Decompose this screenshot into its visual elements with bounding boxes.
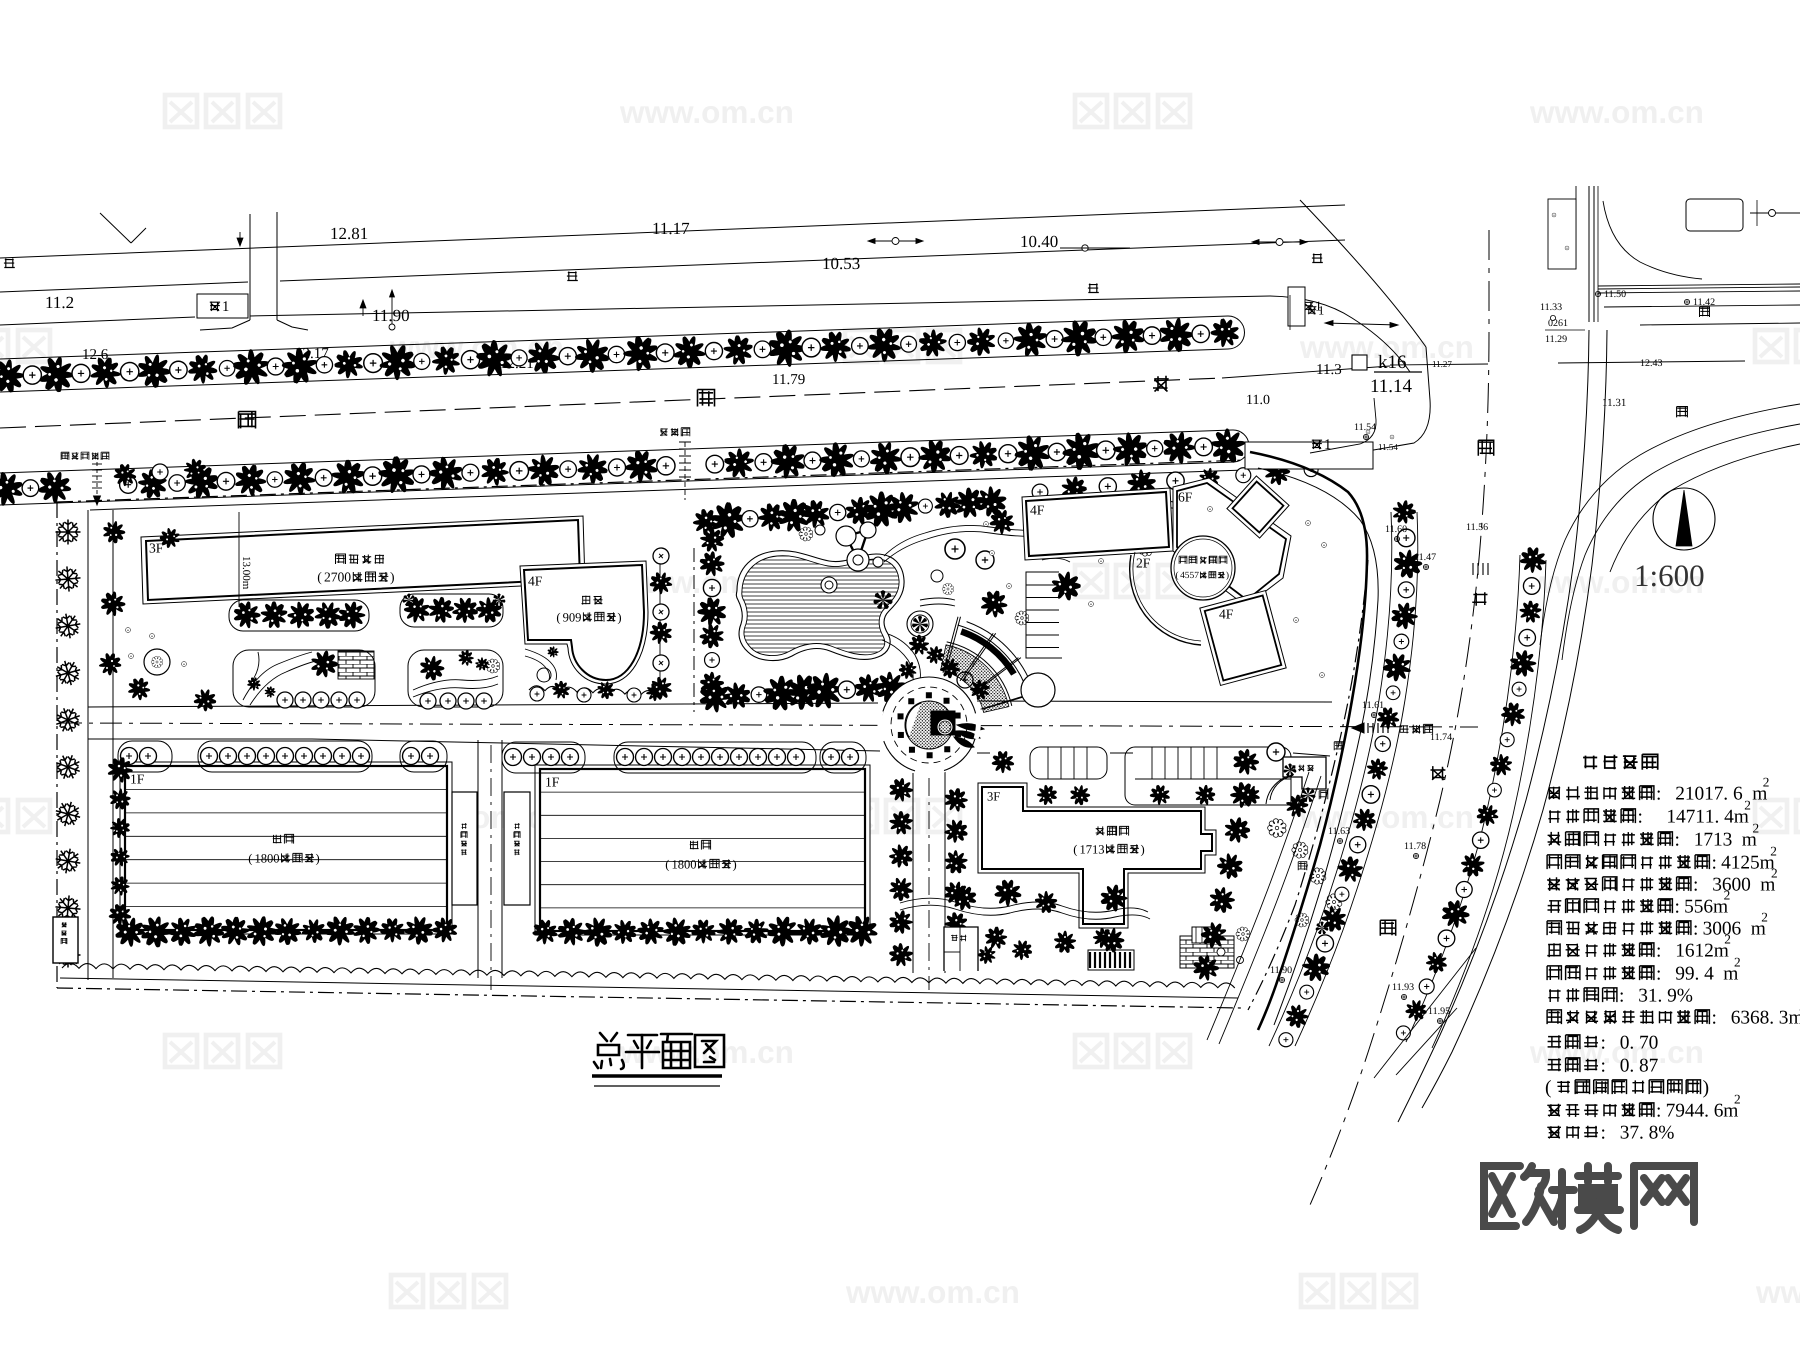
svg-text::: :	[1675, 897, 1680, 918]
svg-text:1: 1	[545, 775, 552, 790]
svg-text:F: F	[993, 789, 1000, 803]
svg-text::: :	[1693, 875, 1698, 896]
svg-text:1: 1	[1666, 807, 1676, 828]
svg-text:2: 2	[1753, 821, 1760, 836]
svg-text:11.93: 11.93	[1392, 982, 1414, 993]
svg-text:4: 4	[1721, 853, 1731, 874]
svg-text:11.0: 11.0	[1246, 393, 1270, 408]
svg-text::: :	[1712, 1008, 1717, 1029]
svg-text:11.63: 11.63	[1328, 826, 1350, 837]
svg-text:10.53: 10.53	[822, 254, 860, 273]
svg-text:3: 3	[1098, 842, 1104, 856]
svg-text:6: 6	[1703, 897, 1713, 918]
svg-text:F: F	[1185, 490, 1193, 505]
svg-text::: :	[1656, 784, 1661, 805]
svg-text:11.27: 11.27	[1432, 359, 1452, 369]
svg-text:11.42: 11.42	[1693, 297, 1715, 308]
svg-text:11.56: 11.56	[1466, 522, 1488, 533]
svg-text:11.74: 11.74	[1430, 732, 1452, 743]
svg-text:.: .	[1704, 1101, 1709, 1122]
svg-text:1: 1	[1685, 784, 1695, 805]
svg-text:3: 3	[1712, 875, 1722, 896]
svg-text:(: (	[556, 610, 560, 624]
svg-text:11.79: 11.79	[772, 372, 805, 388]
svg-text:%: %	[1677, 986, 1693, 1007]
svg-text:4: 4	[1724, 807, 1734, 828]
svg-text:1: 1	[222, 299, 229, 315]
svg-text:F: F	[1037, 503, 1045, 518]
svg-text:3: 3	[1723, 830, 1733, 851]
svg-text:1: 1	[1648, 986, 1658, 1007]
svg-text:2: 2	[1734, 955, 1741, 970]
svg-text:www.om.cn: www.om.cn	[1529, 94, 1704, 130]
svg-text:2: 2	[1770, 844, 1777, 859]
svg-text::: :	[1601, 1056, 1606, 1077]
svg-text::: :	[1601, 1123, 1606, 1144]
svg-text:8: 8	[1760, 1008, 1770, 1029]
svg-text:12.43: 12.43	[1640, 358, 1663, 369]
svg-text:.: .	[1629, 1033, 1634, 1054]
svg-text:11.54: 11.54	[1354, 422, 1376, 433]
svg-text:0: 0	[344, 570, 351, 585]
svg-text:6: 6	[1714, 1101, 1724, 1122]
svg-text:7: 7	[1639, 1033, 1649, 1054]
svg-text:(: (	[317, 570, 322, 585]
svg-text:2: 2	[1763, 775, 1770, 790]
svg-text:11.47: 11.47	[1414, 552, 1436, 563]
svg-text:(: (	[1545, 1078, 1551, 1099]
svg-text:2: 2	[1724, 888, 1731, 903]
svg-text:11.14: 11.14	[1370, 376, 1413, 397]
svg-text:2: 2	[1771, 866, 1778, 881]
svg-text::: :	[1712, 853, 1717, 874]
svg-text:10.40: 10.40	[1020, 232, 1058, 251]
svg-text::: :	[1675, 830, 1680, 851]
svg-text:8: 8	[1639, 1056, 1649, 1077]
svg-text:7: 7	[1194, 571, 1199, 581]
svg-text:.: .	[1715, 807, 1720, 828]
svg-text::: :	[1656, 1101, 1661, 1122]
svg-text:): )	[390, 570, 395, 585]
svg-text:1: 1	[1694, 830, 1704, 851]
svg-text:www.om.cn: www.om.cn	[1755, 1274, 1800, 1310]
svg-text:12.81: 12.81	[330, 224, 368, 243]
svg-text:.: .	[1629, 1056, 1634, 1077]
svg-text:.: .	[1723, 784, 1728, 805]
svg-text:3: 3	[1620, 1123, 1630, 1144]
svg-text:(: (	[665, 857, 669, 871]
svg-text:5: 5	[1684, 897, 1694, 918]
svg-text::: :	[1601, 1033, 1606, 1054]
svg-text:F: F	[1226, 607, 1234, 622]
svg-text:4: 4	[1685, 1101, 1695, 1122]
svg-text:): )	[617, 610, 621, 624]
svg-text:3: 3	[1740, 1008, 1750, 1029]
svg-text:9: 9	[1667, 986, 1677, 1007]
svg-text:7: 7	[1666, 1101, 1676, 1122]
svg-text:0: 0	[690, 857, 696, 871]
svg-text::: :	[1656, 941, 1661, 962]
svg-text:9: 9	[1675, 1101, 1685, 1122]
svg-text:7: 7	[1649, 1056, 1659, 1077]
svg-text:): )	[733, 857, 737, 871]
svg-text:2: 2	[1704, 941, 1714, 962]
svg-text:2: 2	[1724, 932, 1731, 947]
svg-text:1:600: 1:600	[1634, 558, 1705, 593]
svg-text:11.60: 11.60	[1385, 524, 1407, 535]
svg-text:11.29: 11.29	[1545, 334, 1567, 345]
svg-text:1: 1	[1318, 303, 1324, 317]
svg-text:6: 6	[1732, 919, 1742, 940]
svg-text:9: 9	[1685, 964, 1695, 985]
svg-text:7: 7	[1703, 830, 1713, 851]
svg-text:7: 7	[1629, 1123, 1639, 1144]
svg-text:5: 5	[1694, 897, 1704, 918]
svg-text:6: 6	[1733, 784, 1743, 805]
svg-text:9: 9	[575, 610, 581, 624]
svg-text:1: 1	[1731, 853, 1741, 874]
svg-text::: :	[1638, 807, 1643, 828]
svg-text:(: (	[1176, 571, 1179, 581]
svg-text:11.17: 11.17	[652, 219, 690, 238]
svg-text:): )	[316, 851, 320, 865]
svg-text:7: 7	[1686, 807, 1696, 828]
svg-text:11.90: 11.90	[1270, 965, 1292, 976]
svg-text:(: (	[248, 851, 252, 865]
svg-text:2: 2	[1734, 1092, 1741, 1107]
svg-text:): )	[1703, 1078, 1709, 1099]
svg-text:1: 1	[1695, 807, 1705, 828]
svg-text:5: 5	[1750, 853, 1760, 874]
svg-text:F: F	[1143, 556, 1151, 571]
svg-text:.: .	[1639, 1123, 1644, 1144]
svg-text:F: F	[552, 775, 560, 790]
svg-text:0: 0	[1620, 1056, 1630, 1077]
svg-text::: :	[1619, 986, 1624, 1007]
svg-text:1: 1	[1705, 807, 1715, 828]
svg-text:0: 0	[1712, 919, 1722, 940]
svg-text:2: 2	[1761, 910, 1768, 925]
svg-text::: :	[1693, 919, 1698, 940]
svg-text::: :	[1656, 964, 1661, 985]
svg-text:13.00m: 13.00m	[240, 556, 252, 590]
svg-text:3: 3	[1638, 986, 1648, 1007]
svg-text:11.95: 11.95	[1428, 1006, 1450, 1017]
svg-text:k16: k16	[1378, 352, 1407, 373]
svg-text:11.31: 11.31	[1602, 397, 1626, 409]
svg-text:0: 0	[1741, 875, 1751, 896]
svg-text:F: F	[535, 574, 543, 589]
svg-text:1: 1	[1713, 830, 1723, 851]
svg-text:11.61: 11.61	[1362, 700, 1384, 711]
svg-text:6: 6	[1685, 941, 1695, 962]
svg-text:11.90: 11.90	[372, 306, 410, 325]
svg-text:1: 1	[1704, 784, 1714, 805]
svg-text:0: 0	[1732, 875, 1742, 896]
svg-text:4: 4	[1676, 807, 1686, 828]
svg-text:1: 1	[1695, 941, 1705, 962]
svg-text:11.2: 11.2	[45, 293, 74, 312]
svg-text:3: 3	[1703, 919, 1713, 940]
svg-text:0: 0	[1649, 1033, 1659, 1054]
svg-text:2: 2	[1744, 798, 1751, 813]
svg-text:%: %	[1658, 1123, 1674, 1144]
svg-text:(: (	[1073, 842, 1077, 856]
svg-text:8: 8	[1649, 1123, 1659, 1144]
svg-text:11.54: 11.54	[1378, 442, 1398, 452]
svg-text:.: .	[1769, 1008, 1774, 1029]
svg-text:11.78: 11.78	[1404, 841, 1426, 852]
svg-text:1: 1	[1675, 941, 1685, 962]
svg-text:7: 7	[1714, 784, 1724, 805]
svg-text:6: 6	[1731, 1008, 1741, 1029]
svg-text:): )	[1141, 842, 1145, 856]
svg-text:4: 4	[1695, 1101, 1705, 1122]
svg-text:.: .	[1695, 964, 1700, 985]
svg-text:www.om.cn: www.om.cn	[619, 94, 794, 130]
svg-text:2: 2	[1740, 853, 1750, 874]
svg-text:): )	[1226, 571, 1229, 581]
svg-text:6: 6	[1750, 1008, 1760, 1029]
svg-text:11.50: 11.50	[1604, 289, 1626, 300]
svg-text:www.om.cn: www.om.cn	[845, 1274, 1020, 1310]
svg-text:0: 0	[1695, 784, 1705, 805]
svg-text:2: 2	[1675, 784, 1685, 805]
svg-text:9: 9	[1675, 964, 1685, 985]
svg-text:4: 4	[1704, 964, 1714, 985]
svg-text:3: 3	[1779, 1008, 1789, 1029]
svg-text:.: .	[1658, 986, 1663, 1007]
svg-text:0: 0	[273, 851, 279, 865]
svg-text:0: 0	[1620, 1033, 1630, 1054]
svg-text:11.33: 11.33	[1540, 302, 1562, 313]
svg-text:F: F	[137, 772, 145, 787]
svg-text:1: 1	[130, 772, 137, 787]
